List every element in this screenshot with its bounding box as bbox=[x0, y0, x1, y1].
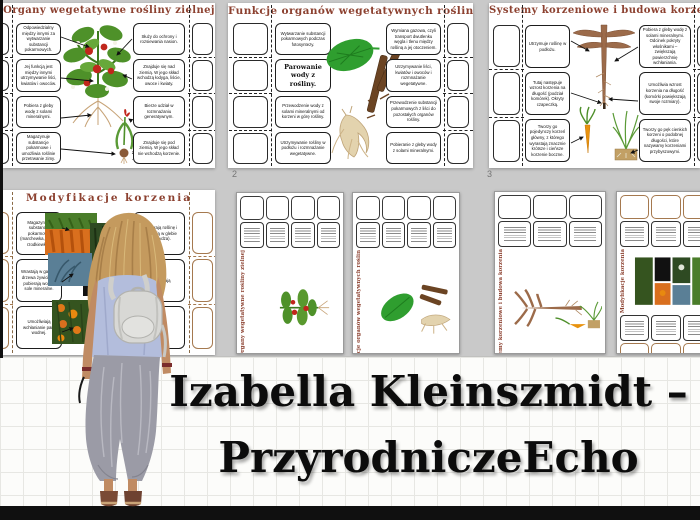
answer-box bbox=[233, 133, 268, 165]
photo-collage-mini bbox=[633, 249, 700, 313]
cut-line bbox=[271, 5, 272, 166]
banner-line1: Izabella Kleinszmidt – bbox=[165, 359, 692, 425]
cut-line bbox=[12, 192, 13, 353]
clue-box: Utrzymywanie liści, kwiatów i owoców i r… bbox=[386, 59, 441, 91]
clue-box: Wytwarzanie substancji pokarmowych podcz… bbox=[275, 23, 331, 55]
answer-box bbox=[493, 25, 520, 67]
clue-box: Tutaj następuje wzrost korzenia na długo… bbox=[525, 72, 570, 115]
page-number: 2 bbox=[232, 169, 237, 179]
rotated-page-title: Modyfikacje korzenia bbox=[620, 249, 633, 313]
clue-box: Umożliwiają wchłanianie pary wodnej. bbox=[16, 306, 62, 349]
answer-box bbox=[192, 23, 213, 55]
rotated-page-funkcje: Funkcje organów wegetatywnych roślin bbox=[352, 192, 460, 354]
answer-box bbox=[233, 23, 268, 55]
cut-answer-column bbox=[3, 23, 9, 164]
answer-box bbox=[3, 23, 9, 55]
answer-box bbox=[192, 60, 213, 92]
answer-box bbox=[192, 307, 213, 349]
cut-line bbox=[12, 5, 13, 166]
clue-box: Pobiera z gleby wodę z solami mineralnym… bbox=[16, 96, 61, 128]
answer-box bbox=[493, 120, 520, 162]
tomato-plant-mini bbox=[253, 250, 340, 354]
clue-box: Pobieranie z gleby wody z solami mineral… bbox=[386, 132, 441, 164]
answer-box bbox=[3, 96, 9, 128]
answer-box bbox=[233, 96, 268, 128]
clue-box: Tworzy go pojedynczy korzeń główny, z kt… bbox=[525, 119, 570, 162]
rotated-page-title: Systemy korzeniowe i budowa korzenia bbox=[498, 249, 511, 354]
clue-box: Umożliwia wzrost korzenia na długość (ko… bbox=[639, 72, 691, 115]
clue-column-left: Utrzymuje roślinę w podłożu. Tutaj nastę… bbox=[525, 25, 570, 162]
clue-box: Utrzymywanie rośliny w podłożu i rozmnaż… bbox=[275, 132, 331, 164]
answer-column bbox=[447, 23, 469, 164]
cut-line bbox=[694, 5, 695, 166]
clue-box: Przewodzenie wody z solami mineralnymi o… bbox=[275, 96, 331, 128]
cut-answer-column bbox=[3, 212, 9, 349]
clue-box: Jej funkcją jest między innymi utrzymywa… bbox=[16, 59, 61, 91]
answer-box bbox=[3, 133, 9, 165]
answer-box bbox=[3, 212, 9, 254]
answer-column bbox=[192, 23, 213, 164]
clue-box: Przewodzenie substancji pokarmowych z li… bbox=[386, 96, 441, 128]
grass-plant-illustration bbox=[613, 111, 639, 160]
page-title: Organy wegetatywne rośliny zielnej bbox=[3, 5, 215, 16]
clue-box: Znajduje się nad ziemią. W jego skład wc… bbox=[133, 59, 185, 91]
clue-box: Służy do ochrony i rozsiewania nasion. bbox=[133, 23, 185, 55]
clue-box: Bierze udział w rozmnażaniu generatywnym… bbox=[133, 96, 185, 128]
rotated-page-title: Organy wegetatywne rośliny zielnej bbox=[240, 250, 253, 354]
answer-box bbox=[447, 60, 469, 92]
cut-line bbox=[189, 192, 190, 353]
answer-box bbox=[192, 96, 213, 128]
clue-box: Znajduje się pod ziemią. W jego skład ni… bbox=[133, 132, 185, 164]
clue-column-right: Służy do ochrony i rozsiewania nasion. Z… bbox=[133, 23, 185, 164]
page-number: 3 bbox=[487, 169, 492, 179]
clue-box: Pobiera z gleby wodę z solami mineralnym… bbox=[639, 25, 691, 68]
clue-box: Odpowiedzialny między innymi za wytwarza… bbox=[16, 23, 61, 55]
cut-line bbox=[522, 5, 523, 166]
left-black-strip bbox=[0, 0, 3, 358]
answer-box bbox=[192, 133, 213, 165]
clue-column-right: Wymiana gazowa, czyli transport dwutlenk… bbox=[386, 23, 441, 164]
answer-box bbox=[447, 96, 469, 128]
worksheet-preview-collage: Organy wegetatywne rośliny zielnej Odpow… bbox=[0, 0, 700, 520]
carrot-illustration bbox=[580, 107, 595, 153]
answer-box bbox=[233, 60, 268, 92]
banner-line2: PrzyrodniczeEcho bbox=[165, 425, 692, 491]
answer-box bbox=[3, 259, 9, 301]
leaf-root-mini bbox=[369, 250, 456, 354]
clue-column-left: Odpowiedzialny między innymi za wytwarza… bbox=[16, 23, 61, 164]
clue-box: Magazynują substancje pokarmowe (marchew… bbox=[16, 212, 62, 255]
clue-box: Wymiana gazowa, czyli transport dwutlenk… bbox=[386, 23, 441, 55]
rotated-page-systemy: Systemy korzeniowe i budowa korzenia bbox=[494, 191, 606, 354]
answer-box bbox=[493, 72, 520, 114]
cut-line bbox=[189, 5, 190, 166]
clue-box: Tworzy go pęk cienkich korzeni o podobne… bbox=[639, 119, 691, 162]
taproot-mini bbox=[511, 249, 602, 354]
clue-box: Wrastają w gałęzie drzewa żywiciela i po… bbox=[16, 259, 62, 302]
rotated-page-organy: Organy wegetatywne rośliny zielnej bbox=[236, 192, 344, 354]
answer-box bbox=[447, 23, 469, 55]
answer-box bbox=[192, 259, 213, 301]
woman-photo bbox=[70, 207, 185, 507]
answer-box bbox=[192, 212, 213, 254]
clue-box: Parowanie wody z rośliny. bbox=[275, 59, 331, 91]
worksheet-page-systemy: Systemy korzeniowe i budowa korzenia Utr… bbox=[489, 3, 700, 168]
banner-text: Izabella Kleinszmidt – PrzyrodniczeEcho bbox=[165, 359, 692, 491]
rotated-page-title: Funkcje organów wegetatywnych roślin bbox=[356, 250, 369, 354]
answer-column bbox=[192, 212, 213, 349]
page-title: Systemy korzeniowe i budowa korzenia bbox=[489, 5, 700, 16]
page-title: Funkcje organów wegetatywnych roślin bbox=[228, 5, 473, 17]
clue-column-left: Magazynują substancje pokarmowe (marchew… bbox=[16, 212, 62, 349]
worksheet-page-organy: Organy wegetatywne rośliny zielnej Odpow… bbox=[3, 3, 215, 168]
answer-box bbox=[447, 133, 469, 165]
cut-line bbox=[444, 5, 445, 166]
rotated-page-modyfikacje: Modyfikacje korzenia bbox=[616, 191, 700, 354]
clue-box: Magazynuje substancje pokarmowe i umożli… bbox=[16, 132, 61, 164]
answer-column bbox=[493, 25, 520, 162]
worksheet-page-funkcje: Funkcje organów wegetatywnych roślin Wyt… bbox=[228, 3, 473, 168]
bottom-black-bar bbox=[0, 506, 700, 520]
clue-column-left: Wytwarzanie substancji pokarmowych podcz… bbox=[275, 23, 331, 164]
answer-box bbox=[3, 307, 9, 349]
clue-box: Utrzymuje roślinę w podłożu. bbox=[525, 25, 570, 68]
clue-column-right: Pobiera z gleby wodę z solami mineralnym… bbox=[639, 25, 691, 162]
answer-box bbox=[3, 60, 9, 92]
page-title: Modyfikacje korzenia bbox=[3, 192, 215, 204]
answer-column bbox=[233, 23, 268, 164]
